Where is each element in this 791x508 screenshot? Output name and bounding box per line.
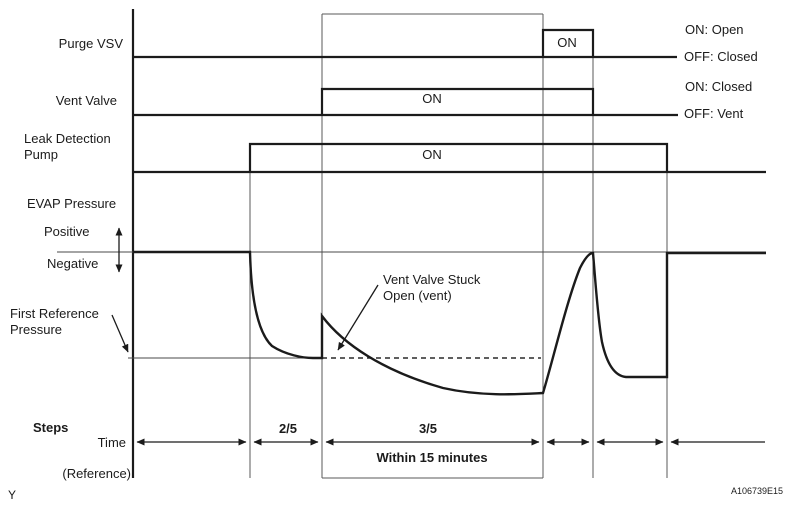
vent-valve-on-pulse (322, 89, 593, 115)
time-label: Time (98, 435, 126, 450)
vent-valve-stuck-annotation-line2: Open (vent) (383, 288, 452, 303)
pump-on-pulse (250, 144, 667, 172)
timing-diagram-page: Purge VSV Vent Valve Leak Detection Pump… (0, 0, 791, 508)
evap-pressure-label: EVAP Pressure (27, 196, 116, 211)
step-2-5-label: 2/5 (279, 421, 297, 436)
gridlines (250, 14, 667, 478)
vent-valve-label: Vent Valve (56, 93, 117, 108)
positive-label: Positive (44, 224, 90, 239)
pump-label-line1: Leak Detection (24, 131, 111, 146)
first-reference-label-line2: Pressure (10, 322, 62, 337)
reference-label: (Reference) (62, 466, 131, 481)
first-reference-pointer-arrow (112, 315, 128, 352)
vent-valve-on-label: ON (422, 91, 442, 106)
purge-legend-off: OFF: Closed (684, 49, 758, 64)
pump-on-label: ON (422, 147, 442, 162)
signal-baselines (133, 57, 766, 172)
signal-pulses (250, 30, 667, 172)
purge-legend-on: ON: Open (685, 22, 744, 37)
first-reference-label-line1: First Reference (10, 306, 99, 321)
negative-label: Negative (47, 256, 98, 271)
purge-vsv-on-label: ON (557, 35, 577, 50)
vent-valve-stuck-pointer-arrow (338, 285, 378, 350)
vent-legend-off: OFF: Vent (684, 106, 744, 121)
figure-code: A106739E15 (731, 486, 783, 496)
vent-legend-on: ON: Closed (685, 79, 752, 94)
vent-valve-stuck-annotation-line1: Vent Valve Stuck (383, 272, 481, 287)
pump-label-line2: Pump (24, 147, 58, 162)
duration-label: Within 15 minutes (376, 450, 487, 465)
corner-mark: Y (8, 488, 16, 502)
step-3-5-label: 3/5 (419, 421, 437, 436)
evap-timing-diagram: Purge VSV Vent Valve Leak Detection Pump… (0, 0, 791, 508)
steps-label: Steps (33, 420, 68, 435)
purge-vsv-label: Purge VSV (59, 36, 124, 51)
